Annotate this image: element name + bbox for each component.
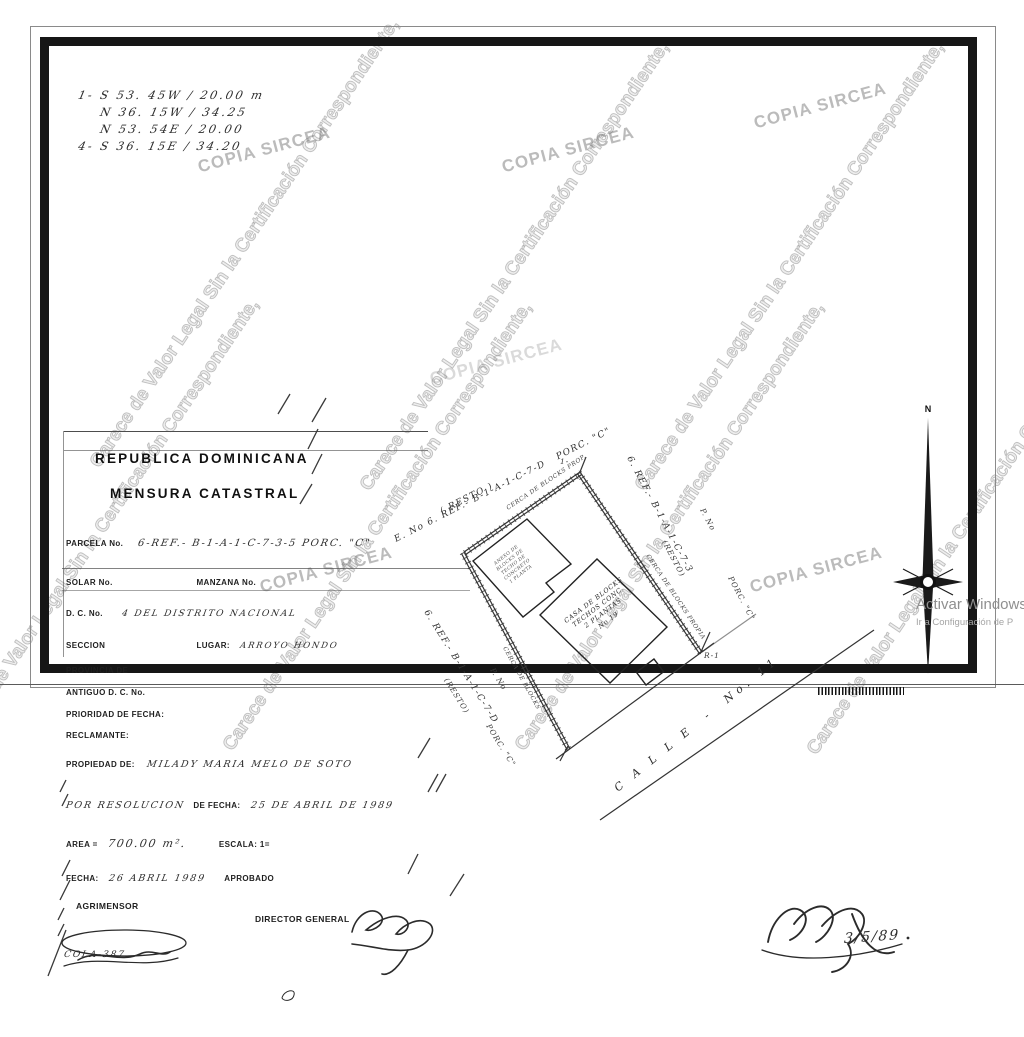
street-name: C A L L E - No. 11 [612, 653, 782, 794]
building-porch-notch [636, 659, 663, 685]
neighbor-right-pno: P. No [698, 506, 718, 533]
compass-rose: N [893, 404, 963, 674]
bearing-line: 4- S 36. 15E / 34.20 [76, 139, 1024, 156]
director-signature-tail [382, 950, 408, 974]
bearing-line: 1- S 53. 45W / 20.00 m [76, 88, 1024, 105]
compass-north-label: N [925, 404, 932, 414]
activate-windows-subtitle: Ir a Configuración de P [916, 617, 1024, 628]
neighbor-parcel-top: E. No 6. REF.- B-1-A-1-C-7-D PORC. "C" [392, 426, 613, 545]
neighbor-left-porc: PORC. "C" [484, 721, 518, 768]
scanned-cadastral-document: { "watermark": { "carece": "Carece de Va… [0, 0, 1024, 718]
signatures [62, 906, 909, 1000]
buildings [473, 519, 667, 685]
survey-plan-drawing: CASA DE BLOCKS TECHOS CONC. 2 PLANTAS No… [0, 314, 1024, 1032]
neighbor-right-porc: PORC. "C" [726, 574, 757, 622]
activate-windows-title: Activar Windows [916, 596, 1024, 613]
annex-building-label: ANEXO DE BLOCKS DE TECHO DE CONCRETO 1 P… [491, 543, 536, 587]
main-building-label: CASA DE BLOCKS TECHOS CONC. 2 PLANTAS No… [562, 575, 639, 644]
scan-line-loop [282, 991, 294, 1001]
approval-signature [762, 906, 909, 972]
neighbor-left-pno: P. No [488, 665, 509, 691]
bearing-line: N 36. 15W / 34.25 [98, 105, 1024, 122]
agrimensor-oval [62, 930, 186, 956]
bearing-notes: 1- S 53. 45W / 20.00 m N 36. 15W / 34.25… [78, 88, 1024, 156]
director-signature [352, 911, 433, 951]
bearing-line: N 53. 54E / 20.00 [98, 122, 1024, 139]
pen-check-marks [48, 394, 464, 976]
windows-activation-overlay: Activar Windows Ir a Configuración de P [916, 596, 1024, 628]
corner-marker-r1: R-1 [703, 651, 720, 660]
compass-hub [922, 575, 935, 588]
compass-needle [923, 418, 934, 674]
neighbor-parcel-right: 6. REF.- B-1-A-1-C-7-3 [624, 455, 694, 575]
fence-caption-sw: CERCA DE BLOCKS [501, 645, 542, 710]
corner-marker-1: 1- [560, 457, 569, 466]
